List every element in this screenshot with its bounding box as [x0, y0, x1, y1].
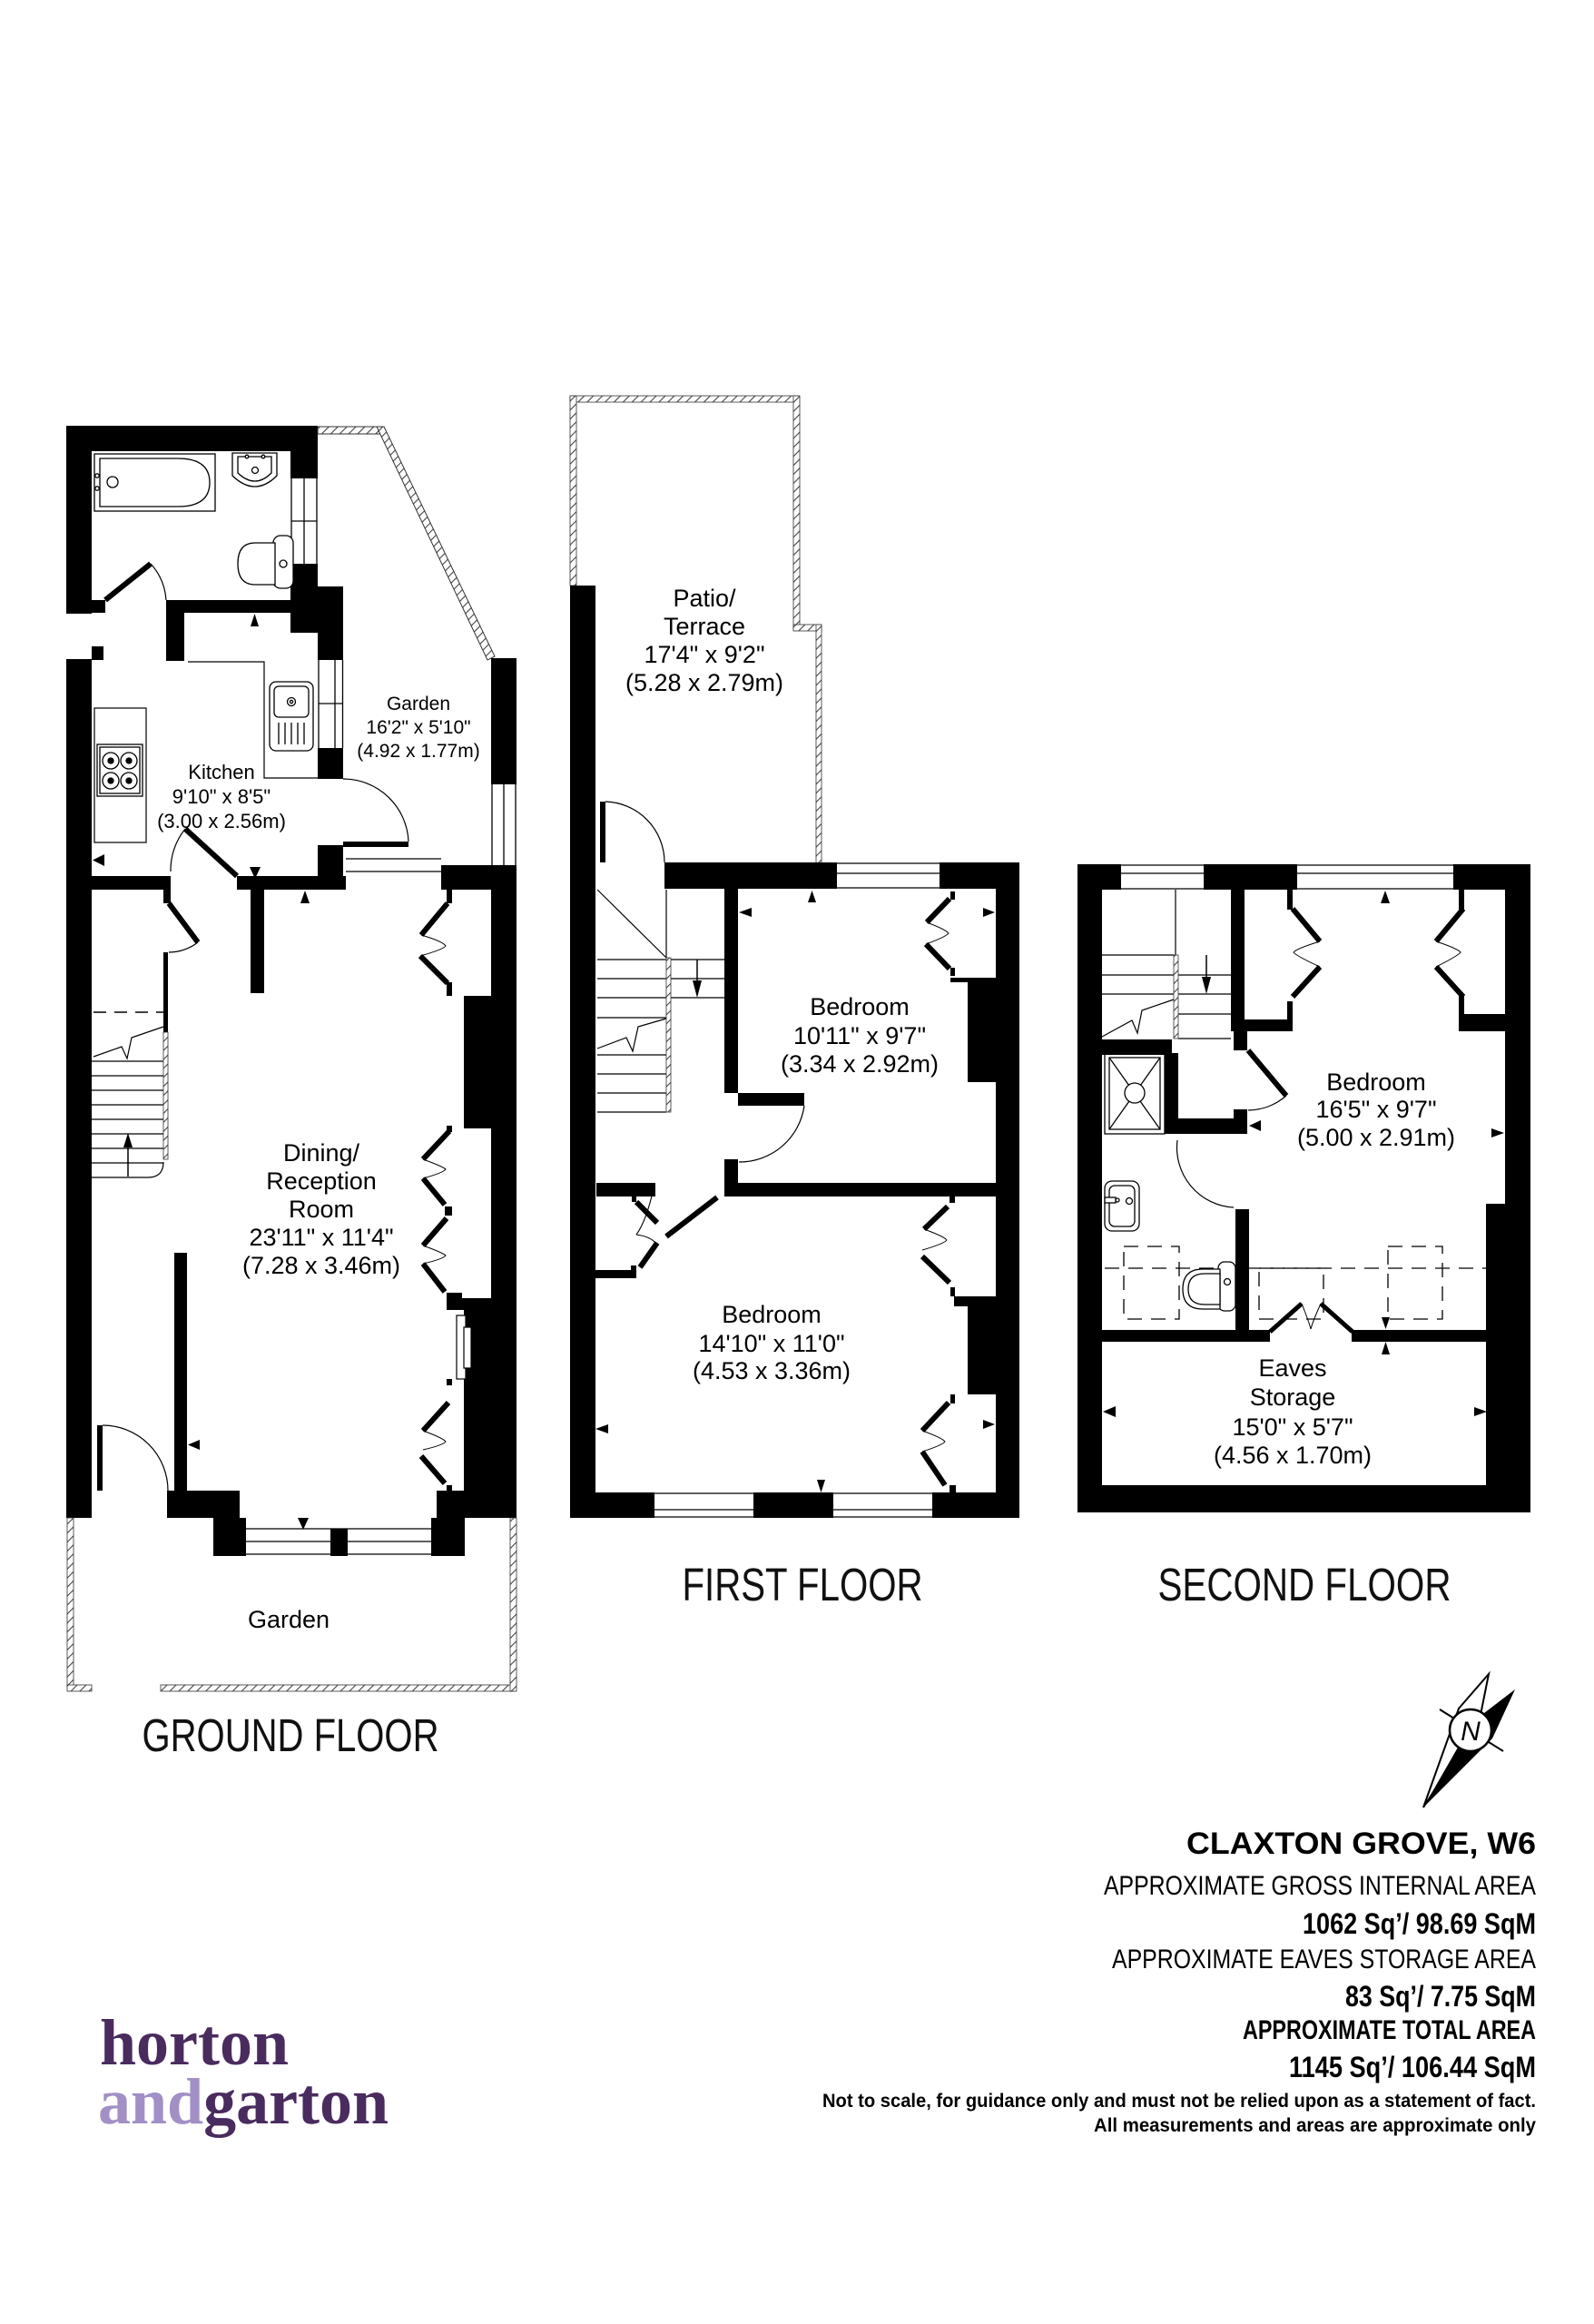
svg-text:1062 Sq’/ 98.69 SqM: 1062 Sq’/ 98.69 SqM — [1303, 1907, 1536, 1940]
svg-text:All measurements and areas are: All measurements and areas are approxima… — [1094, 2115, 1536, 2136]
svg-text:17'4" x 9'2": 17'4" x 9'2" — [644, 641, 764, 668]
svg-text:Dining/: Dining/ — [283, 1139, 360, 1167]
svg-text:Bedroom: Bedroom — [810, 993, 910, 1020]
svg-text:Reception: Reception — [266, 1167, 377, 1195]
svg-text:16'2" x 5'10": 16'2" x 5'10" — [366, 717, 470, 738]
svg-text:APPROXIMATE TOTAL AREA: APPROXIMATE TOTAL AREA — [1243, 2015, 1536, 2045]
svg-text:Kitchen: Kitchen — [188, 761, 254, 783]
svg-text:(7.28 x 3.46m): (7.28 x 3.46m) — [242, 1252, 400, 1279]
svg-text:14'10" x 11'0": 14'10" x 11'0" — [698, 1330, 844, 1357]
svg-text:1145 Sq’/ 106.44 SqM: 1145 Sq’/ 106.44 SqM — [1289, 2051, 1536, 2083]
svg-text:Patio/: Patio/ — [673, 585, 736, 612]
svg-text:Bedroom: Bedroom — [1326, 1068, 1426, 1096]
svg-text:(4.53 x 3.36m): (4.53 x 3.36m) — [693, 1357, 851, 1384]
svg-text:Garden: Garden — [387, 694, 450, 714]
svg-text:Bedroom: Bedroom — [722, 1301, 822, 1328]
svg-text:APPROXIMATE GROSS INTERNAL ARE: APPROXIMATE GROSS INTERNAL AREA — [1104, 1871, 1536, 1901]
svg-text:23'11" x 11'4": 23'11" x 11'4" — [249, 1224, 393, 1251]
svg-text:83 Sq’/ 7.75 SqM: 83 Sq’/ 7.75 SqM — [1345, 1980, 1536, 2013]
svg-text:15'0" x 5'7": 15'0" x 5'7" — [1232, 1413, 1353, 1441]
svg-text:Storage: Storage — [1250, 1384, 1336, 1411]
svg-text:(3.34 x 2.92m): (3.34 x 2.92m) — [781, 1050, 939, 1078]
svg-text:(5.28 x 2.79m): (5.28 x 2.79m) — [625, 669, 783, 696]
svg-text:Eaves: Eaves — [1258, 1354, 1326, 1382]
svg-text:FIRST FLOOR: FIRST FLOOR — [683, 1559, 923, 1610]
svg-text:CLAXTON GROVE, W6: CLAXTON GROVE, W6 — [1186, 1827, 1536, 1861]
svg-text:(4.92 x 1.77m): (4.92 x 1.77m) — [357, 741, 479, 762]
svg-text:SECOND FLOOR: SECOND FLOOR — [1158, 1559, 1451, 1610]
svg-text:andgarton: andgarton — [98, 2065, 389, 2138]
svg-text:10'11" x 9'7": 10'11" x 9'7" — [793, 1022, 926, 1049]
svg-text:Garden: Garden — [248, 1606, 330, 1633]
svg-text:GROUND FLOOR: GROUND FLOOR — [143, 1709, 439, 1761]
svg-text:(3.00 x 2.56m): (3.00 x 2.56m) — [157, 810, 286, 832]
svg-text:16'5" x 9'7": 16'5" x 9'7" — [1315, 1096, 1436, 1123]
svg-text:Room: Room — [289, 1196, 354, 1223]
svg-text:APPROXIMATE EAVES STORAGE AREA: APPROXIMATE EAVES STORAGE AREA — [1112, 1945, 1536, 1974]
svg-text:9'10" x 8'5": 9'10" x 8'5" — [172, 785, 271, 808]
svg-text:Not to scale, for guidance onl: Not to scale, for guidance only and must… — [822, 2091, 1536, 2112]
svg-text:(4.56 x 1.70m): (4.56 x 1.70m) — [1214, 1442, 1372, 1469]
svg-text:N: N — [1461, 1717, 1481, 1747]
svg-text:Terrace: Terrace — [664, 613, 745, 640]
svg-text:(5.00 x 2.91m): (5.00 x 2.91m) — [1297, 1124, 1455, 1151]
